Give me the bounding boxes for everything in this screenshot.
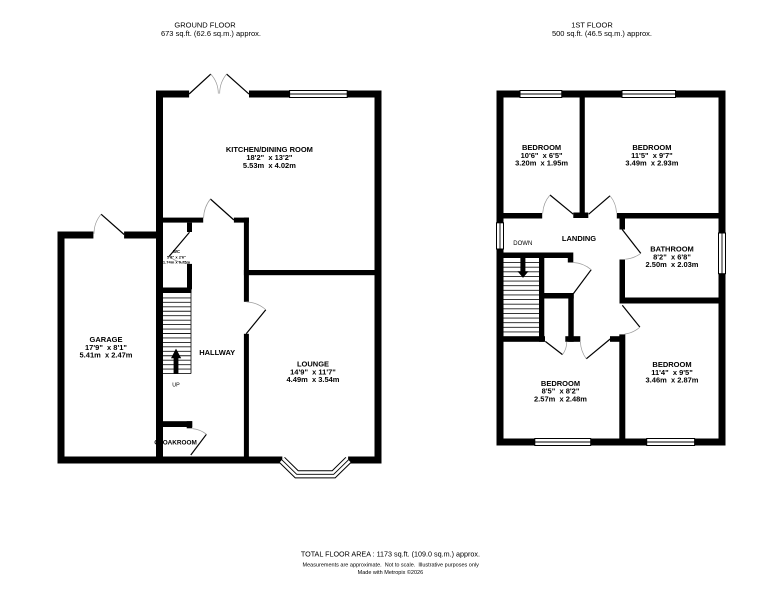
svg-text:4.49m x 3.54m: 4.49m x 3.54m — [287, 375, 340, 384]
svg-text:CLOAKROOM: CLOAKROOM — [154, 439, 197, 446]
svg-text:1.74m x 0.75m: 1.74m x 0.75m — [163, 259, 191, 264]
svg-text:3.46m x 2.87m: 3.46m x 2.87m — [646, 376, 699, 385]
svg-text:DOWN: DOWN — [513, 241, 532, 247]
svg-text:LANDING: LANDING — [562, 234, 596, 243]
svg-text:WC: WC — [173, 249, 180, 254]
svg-text:5.41m x 2.47m: 5.41m x 2.47m — [80, 351, 133, 360]
svg-text:HALLWAY: HALLWAY — [199, 348, 235, 357]
svg-text:2.50m x 2.03m: 2.50m x 2.03m — [646, 260, 699, 269]
svg-text:Made with Metropix ©2026: Made with Metropix ©2026 — [358, 569, 424, 576]
svg-text:500 sq.ft. (46.5 sq.m.) approx: 500 sq.ft. (46.5 sq.m.) approx. — [552, 29, 652, 38]
svg-text:UP: UP — [172, 382, 180, 388]
svg-text:2.57m x 2.48m: 2.57m x 2.48m — [534, 394, 587, 403]
svg-text:Measurements are approximate.: Measurements are approximate. Not to sca… — [303, 563, 480, 569]
svg-text:673 sq.ft. (62.6 sq.m.) approx: 673 sq.ft. (62.6 sq.m.) approx. — [161, 29, 261, 38]
svg-text:5.53m x 4.02m: 5.53m x 4.02m — [243, 161, 296, 170]
svg-text:TOTAL FLOOR AREA : 1173 sq.ft.: TOTAL FLOOR AREA : 1173 sq.ft. (109.0 sq… — [301, 549, 480, 558]
svg-text:3.49m x 2.93m: 3.49m x 2.93m — [625, 159, 678, 168]
svg-text:3.20m x 1.95m: 3.20m x 1.95m — [515, 159, 568, 168]
